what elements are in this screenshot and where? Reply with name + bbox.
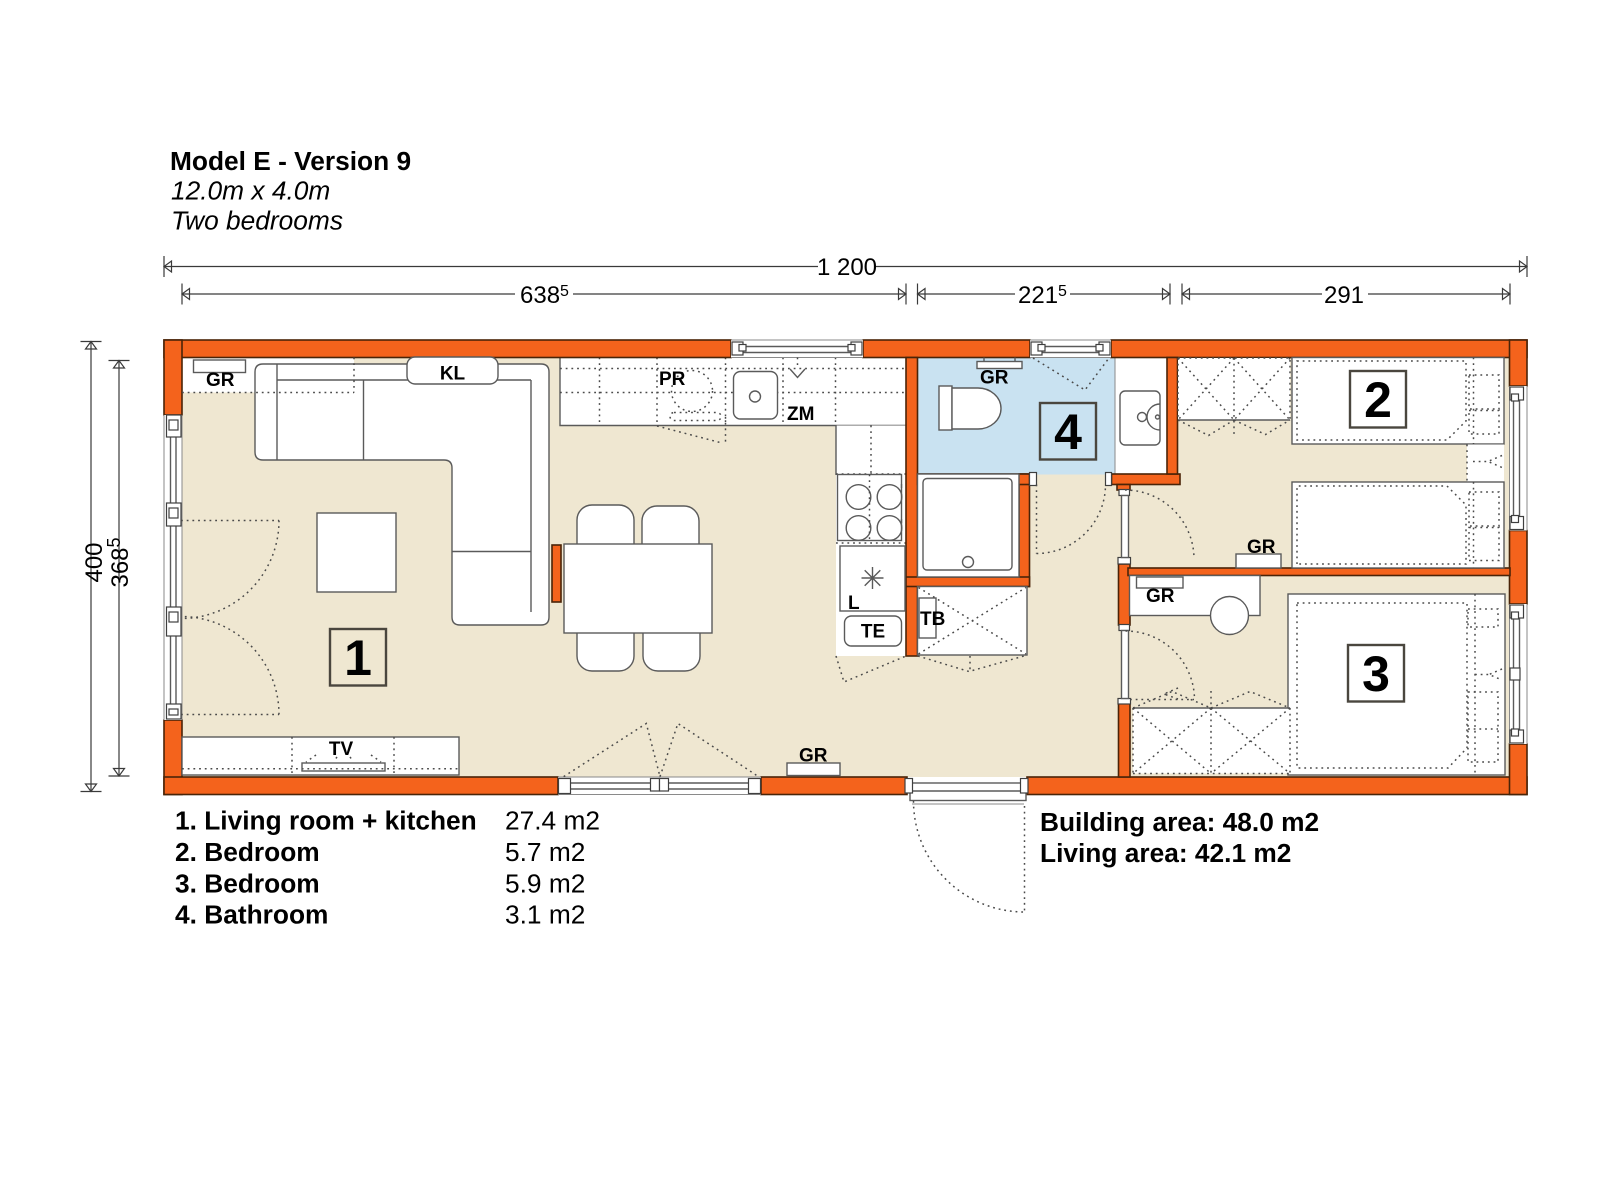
svg-text:5.7 m2: 5.7 m2 — [505, 837, 585, 867]
svg-text:Two bedrooms: Two bedrooms — [171, 206, 343, 236]
svg-text:291: 291 — [1324, 282, 1364, 309]
svg-text:4. Bathroom: 4. Bathroom — [175, 900, 328, 930]
svg-text:TV: TV — [329, 739, 354, 760]
svg-text:Building area: 48.0 m2: Building area: 48.0 m2 — [1040, 807, 1319, 837]
svg-text:GR: GR — [980, 368, 1009, 389]
svg-text:GR: GR — [206, 370, 235, 391]
svg-text:KL: KL — [440, 364, 466, 385]
svg-text:ZM: ZM — [787, 404, 814, 425]
svg-text:GR: GR — [1146, 586, 1175, 607]
svg-text:4: 4 — [1054, 404, 1082, 460]
svg-text:PR: PR — [659, 369, 686, 390]
svg-text:TB: TB — [920, 609, 945, 630]
svg-text:3. Bedroom: 3. Bedroom — [175, 869, 320, 899]
svg-text:1: 1 — [344, 630, 372, 686]
svg-text:400: 400 — [81, 542, 108, 582]
svg-text:1. Living room + kitchen: 1. Living room + kitchen — [175, 806, 477, 836]
svg-text:2. Bedroom: 2. Bedroom — [175, 837, 320, 867]
svg-text:TE: TE — [861, 622, 885, 643]
svg-text:GR: GR — [799, 746, 828, 767]
svg-text:L: L — [848, 593, 860, 614]
svg-text:GR: GR — [1247, 537, 1276, 558]
svg-text:12.0m x 4.0m: 12.0m x 4.0m — [171, 176, 330, 206]
svg-text:1 200: 1 200 — [817, 254, 877, 281]
svg-text:3: 3 — [1362, 646, 1390, 702]
svg-text:2: 2 — [1364, 372, 1392, 428]
svg-text:3.1 m2: 3.1 m2 — [505, 900, 585, 930]
svg-text:Living area: 42.1 m2: Living area: 42.1 m2 — [1040, 838, 1291, 868]
svg-text:5.9 m2: 5.9 m2 — [505, 869, 585, 899]
svg-text:Model E - Version 9: Model E - Version 9 — [170, 146, 411, 176]
svg-text:27.4 m2: 27.4 m2 — [505, 806, 600, 836]
